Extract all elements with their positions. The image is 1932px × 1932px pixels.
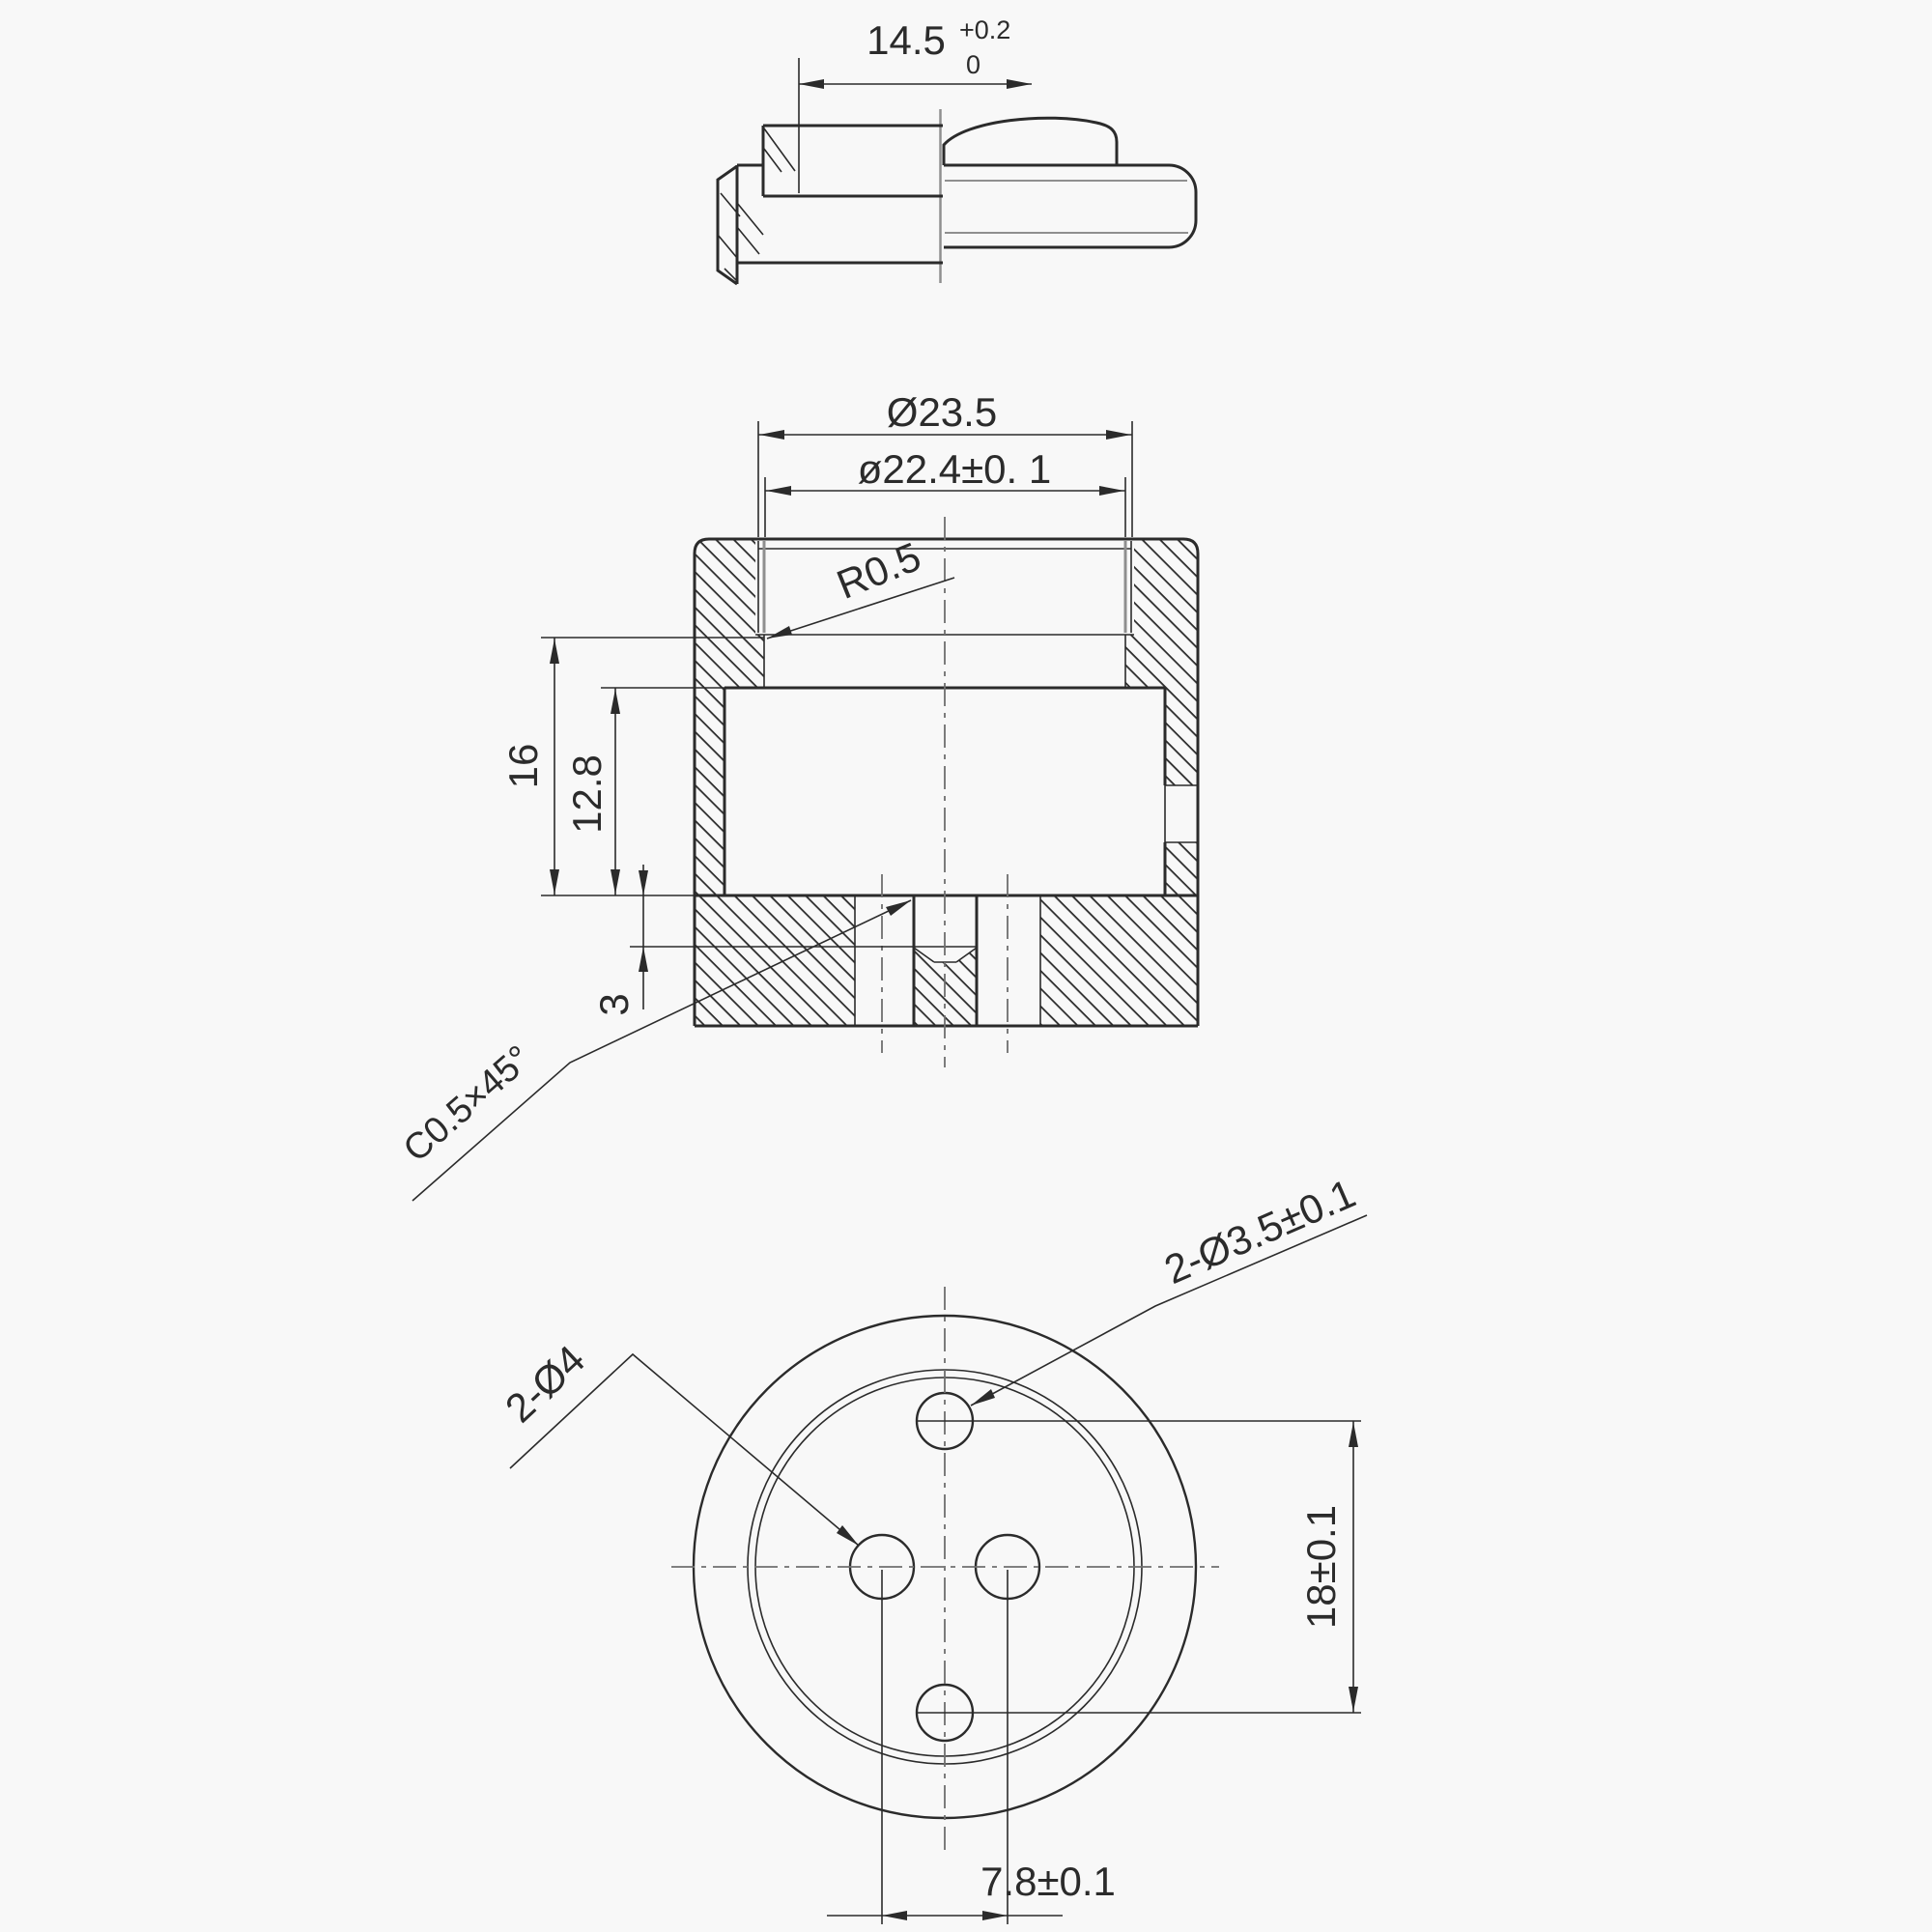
- bottom-view: 18±0.1 7.8±0.1 2-Ø3.5±0.1 2-Ø4: [497, 1170, 1367, 1924]
- profile-left-tab: [718, 166, 737, 284]
- label-text-small-holes: 2-Ø3.5±0.1: [1158, 1170, 1362, 1293]
- label-small-holes: 2-Ø3.5±0.1: [971, 1170, 1367, 1406]
- arrowhead: [837, 1525, 859, 1546]
- arrowhead: [611, 689, 620, 714]
- section-hatch-right-strip: [1165, 842, 1198, 895]
- section-hatch-flange-right: [1040, 895, 1198, 1026]
- leader-line: [971, 1215, 1367, 1406]
- section-hatch-right-wall: [1125, 539, 1198, 785]
- drawing-canvas: 14.5 +0.2 0: [0, 0, 1932, 1932]
- arrowhead: [639, 947, 648, 972]
- arrowhead: [639, 870, 648, 895]
- arrowhead: [971, 1389, 995, 1406]
- profile-tab-chamfer-lines: [718, 193, 763, 282]
- section-hatch-flange-left: [695, 895, 855, 1026]
- arrowhead: [1349, 1687, 1358, 1712]
- profile-upper-slab: [763, 126, 943, 196]
- dim-text-tol-upper: +0.2: [959, 15, 1010, 44]
- dim-text-thread-diameter: ø22.4±0. 1: [858, 446, 1052, 492]
- dim-text-3: 3: [591, 993, 637, 1015]
- arrowhead: [886, 900, 911, 916]
- section-side-window: [1165, 785, 1198, 842]
- dim-text-16: 16: [500, 744, 546, 789]
- chamfer-text: C0.5×45°: [396, 1038, 539, 1171]
- arrowhead: [882, 1911, 907, 1920]
- dim-text-7-8: 7.8±0.1: [980, 1859, 1116, 1904]
- profile-cap-body: [944, 165, 1196, 247]
- arrowhead: [550, 869, 559, 895]
- arrowhead: [1106, 430, 1131, 440]
- cross-section-view: Ø23.5 ø22.4±0. 1 R0.5 16 12.8: [396, 389, 1198, 1201]
- arrowhead: [550, 639, 559, 664]
- dim-text-18: 18±0.1: [1298, 1505, 1344, 1629]
- arrowhead: [611, 869, 620, 895]
- label-large-holes: 2-Ø4: [497, 1336, 859, 1546]
- side-profile-view: 14.5 +0.2 0: [718, 15, 1196, 284]
- arrowhead: [982, 1911, 1008, 1920]
- arrowhead: [1099, 486, 1124, 496]
- profile-step: [737, 165, 763, 284]
- technical-drawing: 14.5 +0.2 0: [0, 0, 1932, 1932]
- fillet-text: R0.5: [831, 533, 927, 608]
- arrowhead: [1349, 1422, 1358, 1447]
- dim-text-12-8: 12.8: [564, 754, 610, 834]
- dim-pitch-7-8: 7.8±0.1: [827, 1570, 1116, 1924]
- dim-text-outer-diameter: Ø23.5: [887, 389, 997, 435]
- label-text-large-holes: 2-Ø4: [497, 1336, 593, 1431]
- dim-text-tol-lower: 0: [966, 50, 980, 79]
- section-hatch-left-wall: [695, 539, 764, 895]
- arrowhead: [766, 486, 791, 496]
- arrowhead: [767, 626, 792, 639]
- arrowhead: [759, 430, 784, 440]
- profile-chamfer-lines: [764, 128, 795, 172]
- arrowhead: [799, 79, 824, 89]
- arrowhead: [1007, 79, 1032, 89]
- profile-dome: [944, 118, 1117, 165]
- dim-text-length: 14.5: [867, 17, 946, 63]
